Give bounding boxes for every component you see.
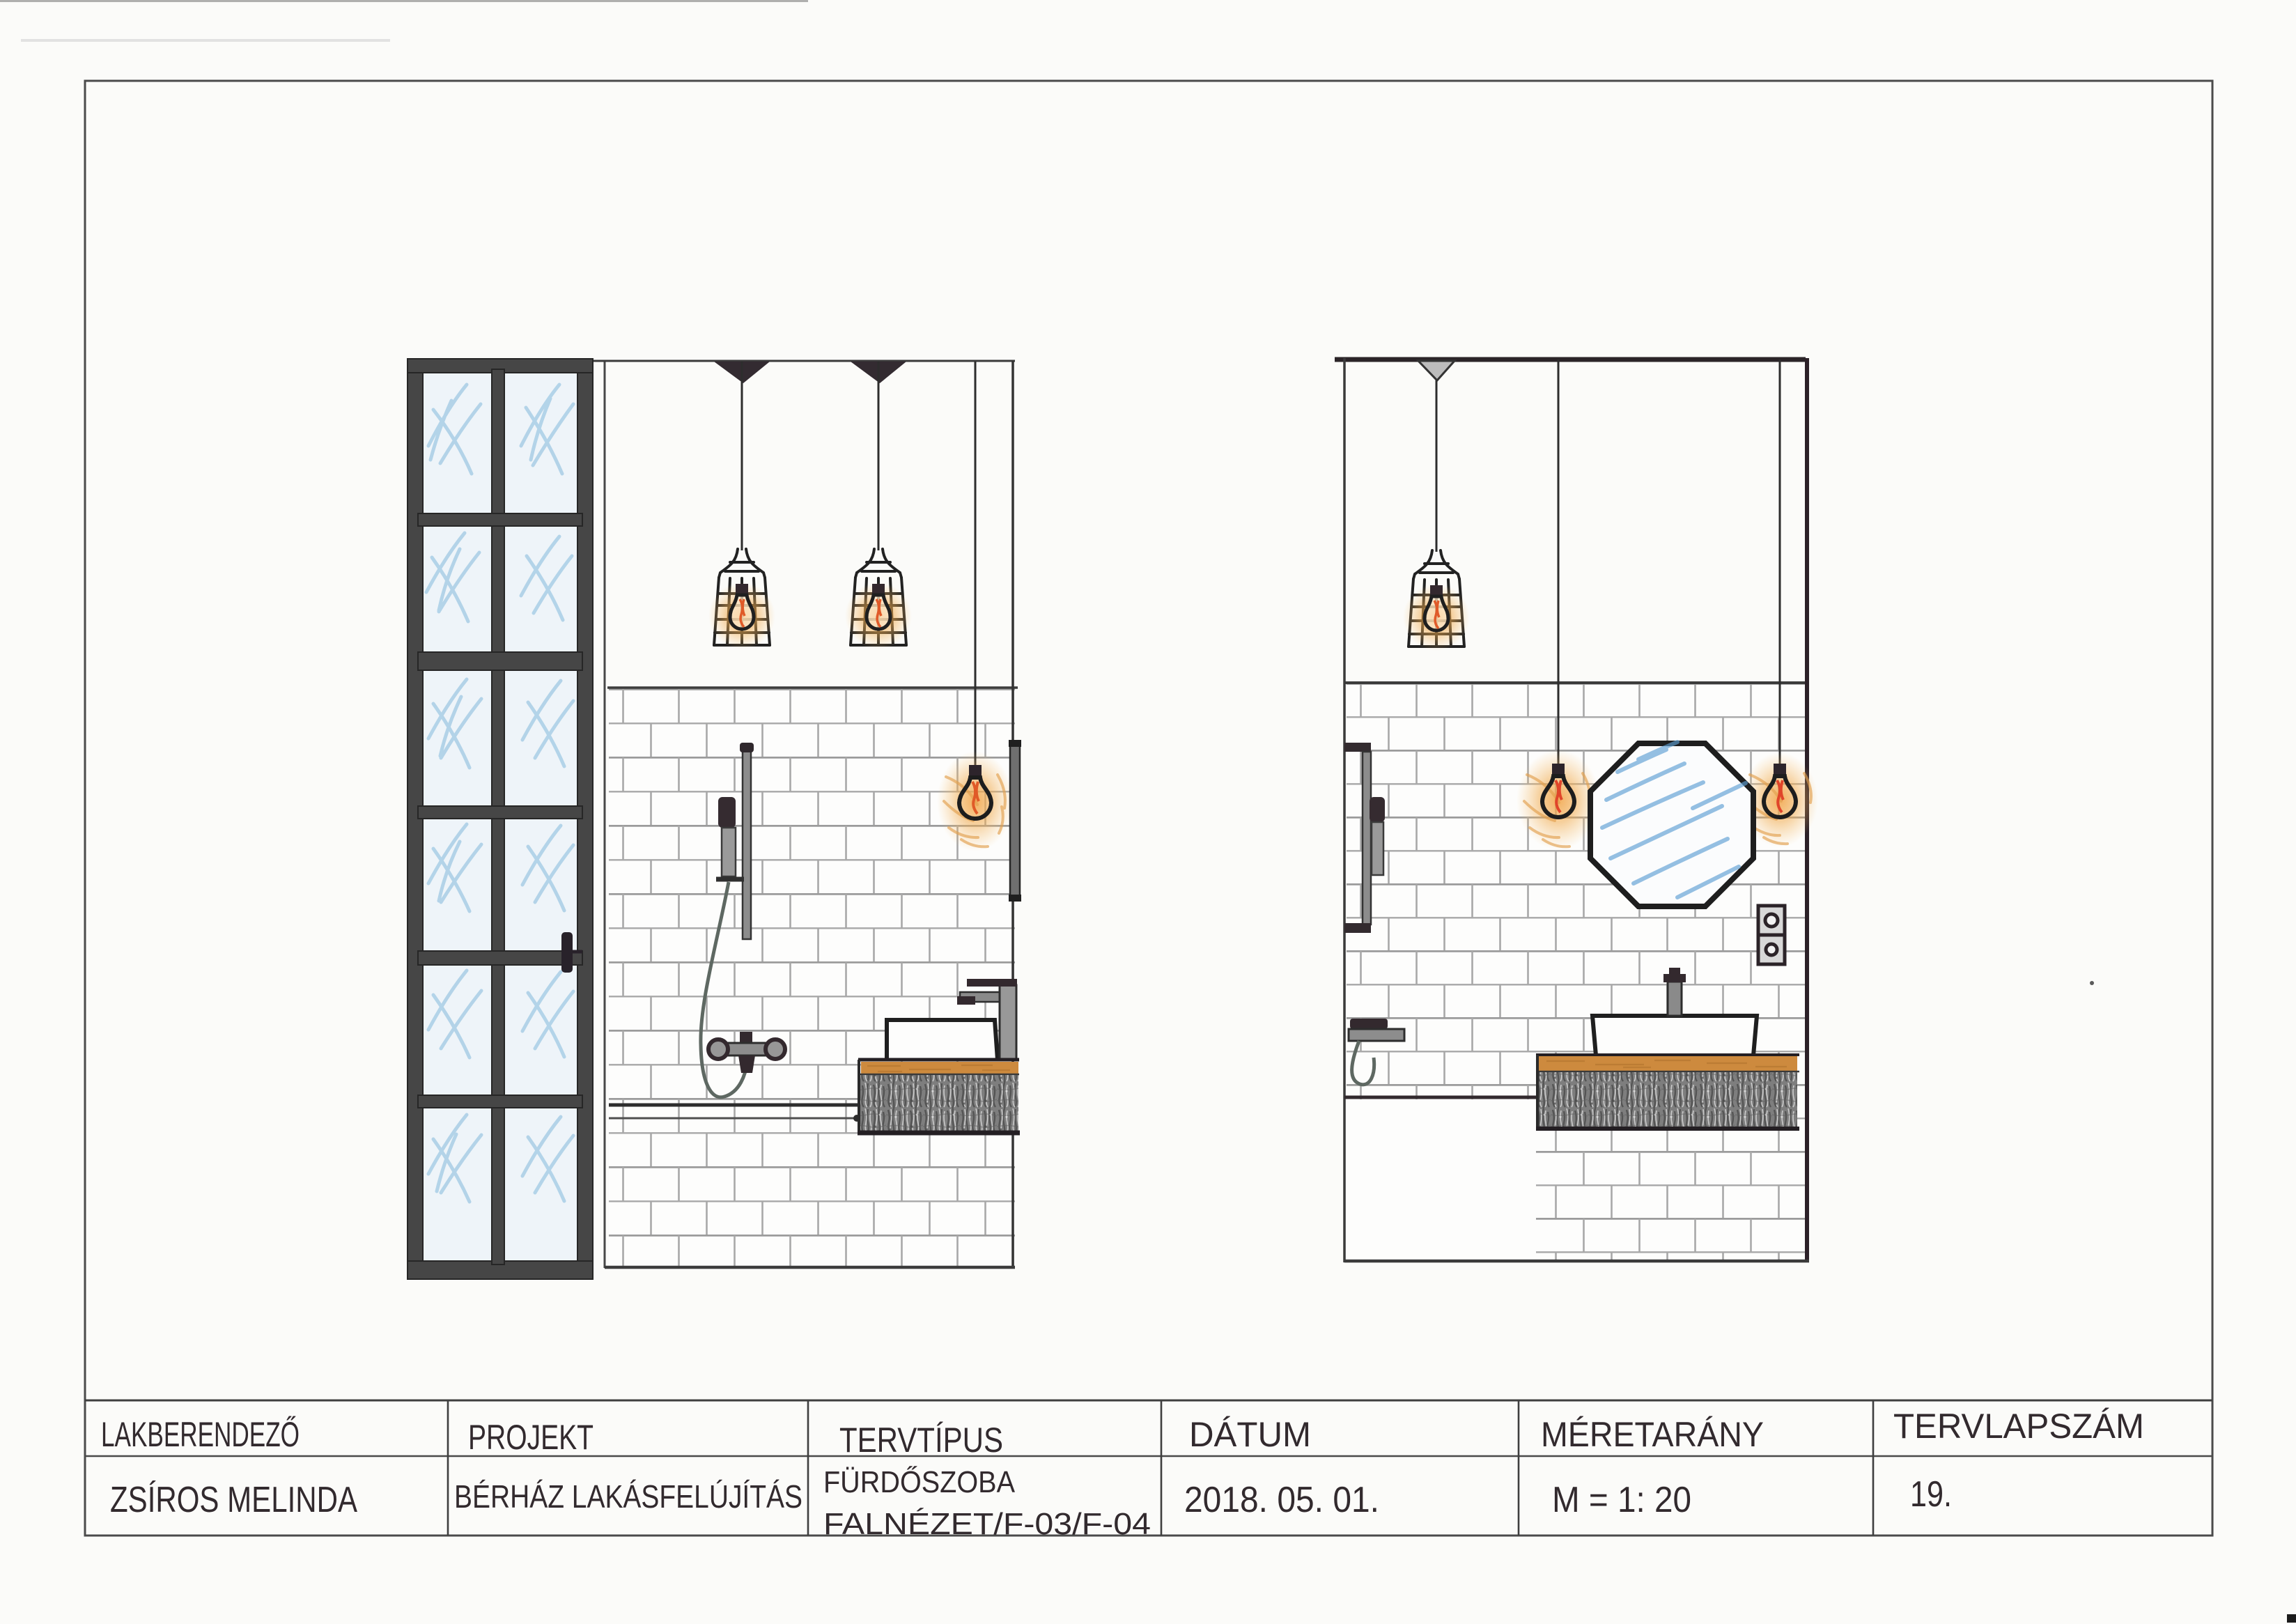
svg-text:TERVTÍPUS: TERVTÍPUS (839, 1421, 1003, 1460)
svg-text:2018. 05. 01.: 2018. 05. 01. (1184, 1480, 1379, 1520)
svg-text:DÁTUM: DÁTUM (1189, 1415, 1311, 1454)
svg-text:FÜRDŐSZOBA: FÜRDŐSZOBA (823, 1465, 1016, 1499)
svg-text:TERVLAPSZÁM: TERVLAPSZÁM (1893, 1407, 2144, 1446)
svg-text:M = 1: 20: M = 1: 20 (1552, 1480, 1691, 1520)
svg-text:19.: 19. (1910, 1474, 1952, 1515)
svg-text:MÉRETARÁNY: MÉRETARÁNY (1541, 1415, 1764, 1454)
svg-text:FALNÉZET/F-03/F-04: FALNÉZET/F-03/F-04 (823, 1507, 1151, 1541)
svg-text:PROJEKT: PROJEKT (468, 1418, 594, 1457)
svg-text:BÉRHÁZ LAKÁSFELÚJÍTÁS: BÉRHÁZ LAKÁSFELÚJÍTÁS (454, 1478, 802, 1515)
svg-text:LAKBERENDEZŐ: LAKBERENDEZŐ (101, 1415, 300, 1454)
svg-text:ZSÍROS MELINDA: ZSÍROS MELINDA (110, 1480, 357, 1520)
